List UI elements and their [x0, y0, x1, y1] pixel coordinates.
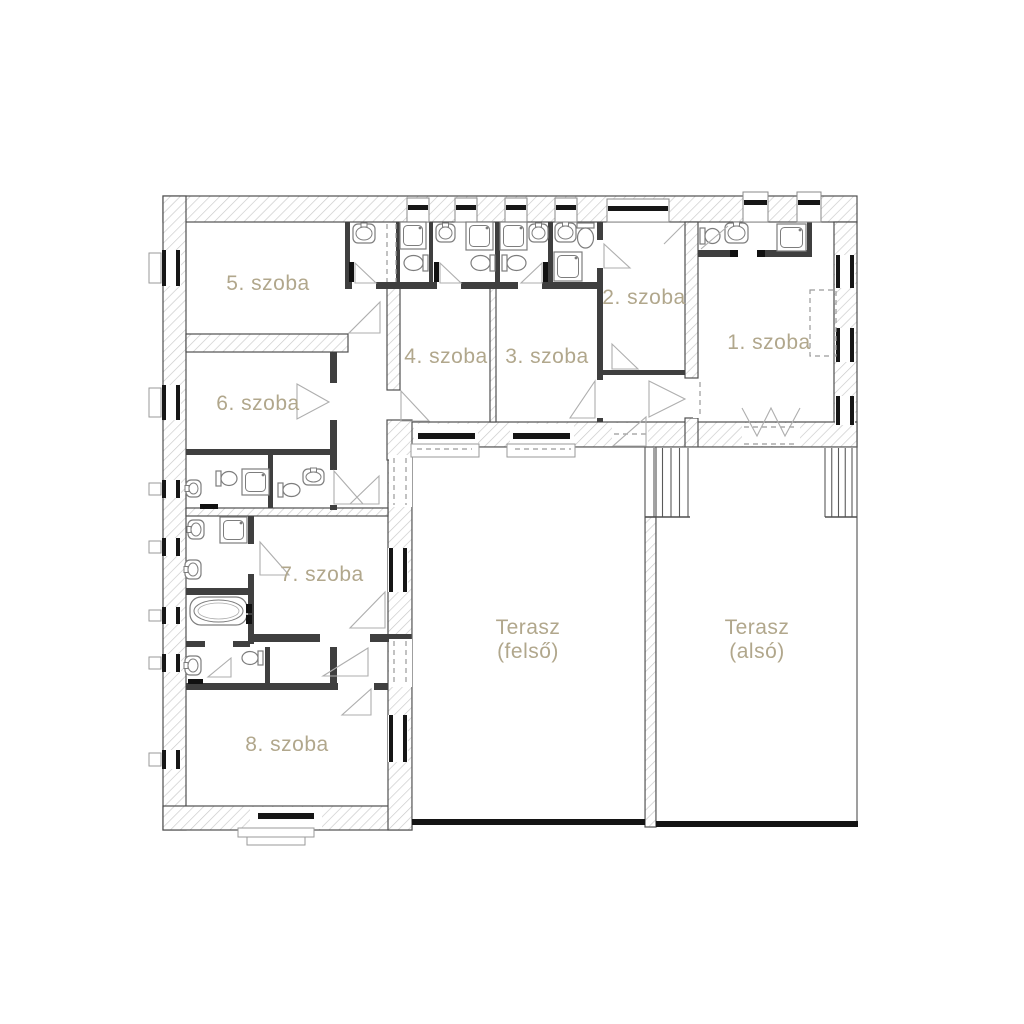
- room-label-room-5: 5. szoba: [226, 272, 309, 295]
- window-icon: [176, 750, 180, 769]
- window-icon: [176, 385, 180, 420]
- window-icon: [556, 205, 576, 210]
- window-sill: [411, 444, 479, 457]
- shower-drain: [575, 257, 578, 260]
- window-sill: [149, 541, 161, 553]
- terrace-step-edge: [412, 819, 645, 825]
- wall-hatched: [163, 196, 186, 830]
- shower-tray: [777, 224, 806, 251]
- window-icon: [836, 396, 840, 425]
- wall-hatched: [645, 517, 656, 827]
- window-icon: [162, 480, 166, 498]
- toilet-bowl: [242, 652, 258, 665]
- terrace-label-terasz-felso-sub: (felső): [497, 640, 559, 663]
- window-sill: [149, 657, 161, 669]
- sink-icon: [185, 480, 201, 497]
- wall-partition: [548, 222, 553, 284]
- window-icon: [403, 715, 407, 762]
- door-opening: [389, 455, 412, 507]
- wall-partition: [495, 222, 500, 284]
- entry-step: [238, 828, 314, 837]
- bathtub-icon: [190, 597, 247, 625]
- sink-icon: [184, 560, 201, 579]
- toilet-icon: [577, 223, 594, 248]
- room-label-room-7: 7. szoba: [280, 563, 363, 586]
- wall-partition: [807, 222, 812, 257]
- sink-icon: [184, 656, 201, 675]
- window-icon: [456, 205, 476, 210]
- entry-step: [247, 837, 305, 845]
- shower-icon: [400, 222, 426, 249]
- door-jamb: [200, 504, 218, 509]
- bathtub-rim: [190, 597, 247, 625]
- sink-tap: [184, 663, 188, 669]
- window-icon: [744, 200, 767, 205]
- wall-partition: [248, 516, 254, 644]
- shower-icon: [242, 469, 269, 495]
- window-icon: [513, 433, 570, 439]
- window-icon: [176, 250, 180, 286]
- sink-tap: [443, 223, 449, 227]
- toilet-icon: [278, 483, 300, 497]
- door-opening: [437, 280, 461, 290]
- window-icon: [389, 548, 393, 592]
- room-label-room-3: 3. szoba: [505, 345, 588, 368]
- shower-drain: [240, 522, 243, 525]
- window-sill: [507, 444, 575, 457]
- window-icon: [798, 200, 820, 205]
- window-sill: [149, 388, 161, 417]
- window-icon: [418, 433, 475, 439]
- door-opening: [338, 683, 374, 690]
- wall-partition: [186, 449, 332, 455]
- shower-drain: [799, 229, 802, 232]
- wall-hatched: [387, 287, 400, 390]
- door-opening: [389, 639, 412, 687]
- sink-tap: [734, 222, 740, 226]
- terrace-label-terasz-also-sub: (alsó): [729, 640, 785, 663]
- toilet-bowl: [404, 256, 423, 271]
- toilet-bowl: [507, 256, 526, 271]
- terrace-label-terasz-also: Terasz: [725, 616, 790, 639]
- toilet-bowl: [705, 229, 720, 244]
- shower-drain: [419, 227, 422, 230]
- wall-hatched: [186, 334, 348, 352]
- door-jamb: [188, 679, 203, 684]
- shower-drain: [486, 227, 489, 230]
- shower-tray: [466, 222, 493, 250]
- toilet-icon: [242, 651, 263, 665]
- shower-icon: [777, 224, 806, 251]
- door-jamb: [246, 615, 252, 624]
- window-icon: [258, 813, 314, 819]
- sink-tap: [536, 223, 542, 227]
- door-jamb: [757, 250, 765, 257]
- sink-icon: [303, 468, 324, 485]
- window-icon: [176, 480, 180, 498]
- toilet-bowl: [221, 472, 237, 486]
- door-opening: [352, 280, 376, 290]
- window-sill: [149, 753, 161, 766]
- window-box: [797, 192, 821, 222]
- wall-partition: [429, 222, 433, 284]
- floor-plan-svg: 5. szoba6. szoba4. szoba3. szoba2. szoba…: [0, 0, 1024, 1024]
- window-icon: [506, 205, 526, 210]
- terrace-step-edge: [656, 821, 858, 827]
- door-opening: [518, 280, 542, 290]
- window-icon: [162, 538, 166, 556]
- door-opening: [320, 634, 370, 642]
- door-opening: [247, 544, 255, 574]
- window-sill: [149, 610, 161, 621]
- room-label-room-4: 4. szoba: [404, 345, 487, 368]
- toilet-icon: [404, 255, 428, 271]
- window-icon: [162, 250, 166, 286]
- shower-tray: [554, 252, 582, 281]
- toilet-tank: [423, 255, 428, 271]
- window-icon: [176, 607, 180, 624]
- shower-icon: [220, 517, 247, 543]
- door-opening: [205, 641, 233, 647]
- sink-tap: [184, 567, 188, 573]
- wall-partition: [265, 647, 270, 683]
- wall-partition: [186, 588, 250, 595]
- terraces-layer: [412, 447, 858, 827]
- shower-icon: [500, 222, 527, 250]
- sink-tap: [187, 527, 191, 533]
- sink-icon: [436, 223, 455, 242]
- sink-icon: [529, 223, 548, 242]
- window-icon: [162, 607, 166, 624]
- door-jamb: [434, 262, 439, 282]
- toilet-icon: [471, 255, 495, 271]
- toilet-tank: [490, 255, 495, 271]
- wall-hatched: [387, 420, 412, 460]
- toilet-tank: [278, 483, 283, 497]
- toilet-tank: [258, 651, 263, 665]
- wall-partition: [330, 647, 337, 683]
- window-icon: [850, 396, 854, 425]
- window-sill: [149, 483, 161, 495]
- toilet-tank: [700, 228, 705, 244]
- wall-partition: [602, 370, 685, 375]
- window-icon: [850, 255, 854, 288]
- door-jamb: [543, 262, 548, 282]
- shower-tray: [500, 222, 527, 250]
- shower-drain: [520, 227, 523, 230]
- window-box: [743, 192, 768, 222]
- wall-partition: [698, 250, 730, 257]
- toilet-tank: [502, 255, 507, 271]
- door-opening: [596, 380, 604, 418]
- sink-tap: [185, 486, 189, 492]
- shower-drain: [262, 474, 265, 477]
- window-icon: [162, 750, 166, 769]
- door-jamb: [349, 262, 354, 282]
- door-jamb: [246, 604, 252, 613]
- window-icon: [176, 538, 180, 556]
- room-label-room-8: 8. szoba: [245, 733, 328, 756]
- shower-icon: [466, 222, 493, 250]
- window-sill: [149, 253, 161, 283]
- room-label-room-6: 6. szoba: [216, 392, 299, 415]
- window-icon: [389, 715, 393, 762]
- toilet-bowl: [471, 256, 490, 271]
- sink-tap: [361, 223, 367, 227]
- sink-icon: [353, 223, 375, 243]
- toilet-icon: [216, 471, 237, 486]
- wall-partition: [345, 282, 603, 289]
- room-label-room-1: 1. szoba: [727, 331, 810, 354]
- wall-hatched: [685, 418, 698, 447]
- window-icon: [162, 654, 166, 672]
- window-icon: [403, 548, 407, 592]
- sink-icon: [555, 222, 576, 242]
- door-opening: [329, 383, 338, 420]
- terrace-label-terasz-felso: Terasz: [496, 616, 561, 639]
- wall-partition: [597, 222, 603, 240]
- shower-icon: [554, 252, 582, 281]
- wall-hatched: [490, 287, 496, 422]
- window-icon: [408, 205, 428, 210]
- toilet-bowl: [283, 484, 300, 497]
- window-icon: [176, 654, 180, 672]
- window-icon: [850, 328, 854, 362]
- window-icon: [608, 206, 668, 211]
- sink-tap: [311, 468, 317, 472]
- sink-icon: [187, 520, 204, 539]
- toilet-icon: [502, 255, 526, 271]
- toilet-tank: [216, 471, 221, 486]
- window-icon: [162, 385, 166, 420]
- toilet-tank: [577, 223, 594, 228]
- sink-icon: [725, 222, 748, 243]
- room-label-room-2: 2. szoba: [602, 286, 685, 309]
- wall-hatched: [685, 222, 698, 378]
- toilet-bowl: [578, 228, 594, 248]
- window-icon: [836, 255, 840, 288]
- sink-tap: [563, 222, 569, 226]
- wall-hatched: [186, 508, 388, 516]
- door-jamb: [730, 250, 738, 257]
